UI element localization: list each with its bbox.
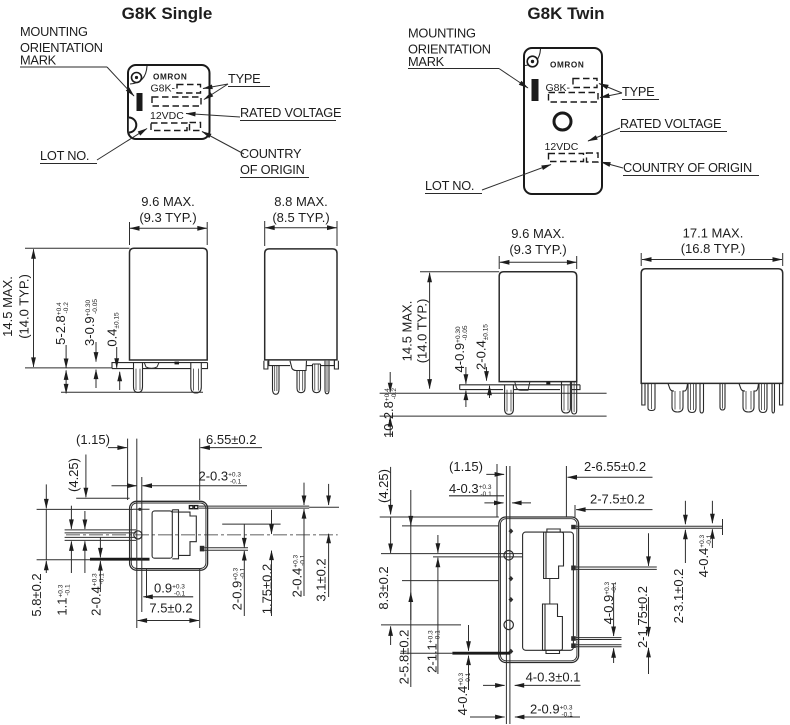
svg-text:2-0.3+0.3-0.1: 2-0.3+0.3-0.1 — [199, 469, 242, 486]
svg-text:12VDC: 12VDC — [150, 110, 184, 122]
svg-text:(14.0 TYP.): (14.0 TYP.) — [415, 299, 430, 364]
svg-text:MOUNTING: MOUNTING — [408, 26, 476, 41]
svg-text:14.5 MAX.: 14.5 MAX. — [400, 301, 415, 362]
svg-text:G8K Single: G8K Single — [122, 4, 213, 23]
svg-text:(14.0 TYP.): (14.0 TYP.) — [17, 274, 32, 339]
svg-text:2-7.5±0.2: 2-7.5±0.2 — [590, 492, 645, 507]
svg-text:(8.5 TYP.): (8.5 TYP.) — [272, 210, 329, 225]
svg-text:17.1 MAX.: 17.1 MAX. — [683, 226, 744, 241]
svg-text:1.75±0.2: 1.75±0.2 — [260, 564, 275, 615]
svg-text:4-0.4+0.3-0.1: 4-0.4+0.3-0.1 — [455, 672, 472, 715]
svg-text:TYPE: TYPE — [228, 71, 260, 86]
svg-text:MARK: MARK — [20, 53, 57, 68]
svg-text:OMRON: OMRON — [153, 73, 187, 82]
svg-text:(16.8 TYP.): (16.8 TYP.) — [681, 241, 746, 256]
svg-text:G8K-: G8K- — [151, 83, 176, 95]
svg-text:LOT NO.: LOT NO. — [425, 178, 474, 193]
svg-text:(1.15): (1.15) — [449, 459, 483, 474]
svg-text:10-2.8+0.4-0.2: 10-2.8+0.4-0.2 — [381, 388, 398, 438]
svg-text:RATED VOLTAGE: RATED VOLTAGE — [620, 116, 721, 131]
svg-text:3-0.9+0.30-0.05: 3-0.9+0.30-0.05 — [82, 299, 99, 346]
svg-text:MARK: MARK — [408, 54, 445, 69]
svg-text:(9.3 TYP.): (9.3 TYP.) — [139, 210, 196, 225]
svg-text:OMRON: OMRON — [550, 61, 584, 70]
svg-text:5-2.8+0.4-0.2: 5-2.8+0.4-0.2 — [53, 302, 70, 345]
svg-text:LOT NO.: LOT NO. — [40, 148, 89, 163]
svg-text:9.6 MAX.: 9.6 MAX. — [511, 226, 564, 241]
svg-text:14.5 MAX.: 14.5 MAX. — [0, 276, 15, 337]
svg-text:4-0.9+0.30-0.05: 4-0.9+0.30-0.05 — [452, 325, 469, 372]
svg-text:2-3.1±0.2: 2-3.1±0.2 — [671, 569, 686, 624]
svg-text:RATED VOLTAGE: RATED VOLTAGE — [240, 105, 341, 120]
svg-text:7.5±0.2: 7.5±0.2 — [149, 601, 192, 616]
svg-text:8.8 MAX.: 8.8 MAX. — [274, 194, 327, 209]
svg-text:(4.25): (4.25) — [376, 469, 391, 503]
svg-text:2-1.75±0.2: 2-1.75±0.2 — [635, 586, 650, 648]
svg-text:12VDC: 12VDC — [545, 141, 579, 153]
svg-text:2-0.9+0.3-0.1: 2-0.9+0.3-0.1 — [530, 702, 573, 719]
svg-text:4-0.4+0.3-0.1: 4-0.4+0.3-0.1 — [696, 534, 713, 577]
svg-text:4-0.3±0.1: 4-0.3±0.1 — [526, 670, 581, 685]
svg-text:(9.3 TYP.): (9.3 TYP.) — [509, 242, 566, 257]
svg-text:2-6.55±0.2: 2-6.55±0.2 — [584, 459, 646, 474]
svg-text:TYPE: TYPE — [622, 84, 654, 99]
svg-text:2-5.8±0.2: 2-5.8±0.2 — [397, 630, 412, 685]
svg-text:0.9+0.3-0.1: 0.9+0.3-0.1 — [154, 581, 186, 598]
svg-text:MOUNTING: MOUNTING — [20, 24, 88, 39]
svg-text:(1.15): (1.15) — [76, 432, 110, 447]
svg-text:3.1±0.2: 3.1±0.2 — [314, 558, 329, 601]
svg-text:5.8±0.2: 5.8±0.2 — [29, 573, 44, 616]
svg-text:2-0.4+0.3-0.1: 2-0.4+0.3-0.1 — [89, 573, 106, 616]
svg-text:COUNTRY OF ORIGIN: COUNTRY OF ORIGIN — [623, 160, 752, 175]
svg-text:(4.25): (4.25) — [66, 458, 81, 492]
svg-text:2-1.1+0.3-0.1: 2-1.1+0.3-0.1 — [425, 630, 442, 673]
svg-text:G8K Twin: G8K Twin — [527, 4, 604, 23]
svg-text:OF ORIGIN: OF ORIGIN — [240, 162, 305, 177]
svg-text:COUNTRY: COUNTRY — [240, 146, 302, 161]
svg-text:4-0.9+0.3-0.1: 4-0.9+0.3-0.1 — [601, 581, 618, 624]
svg-text:8.3±0.2: 8.3±0.2 — [376, 566, 391, 609]
svg-text:9.6 MAX.: 9.6 MAX. — [141, 194, 194, 209]
svg-text:6.55±0.2: 6.55±0.2 — [206, 432, 257, 447]
svg-text:1.1+0.3-0.1: 1.1+0.3-0.1 — [55, 584, 72, 616]
